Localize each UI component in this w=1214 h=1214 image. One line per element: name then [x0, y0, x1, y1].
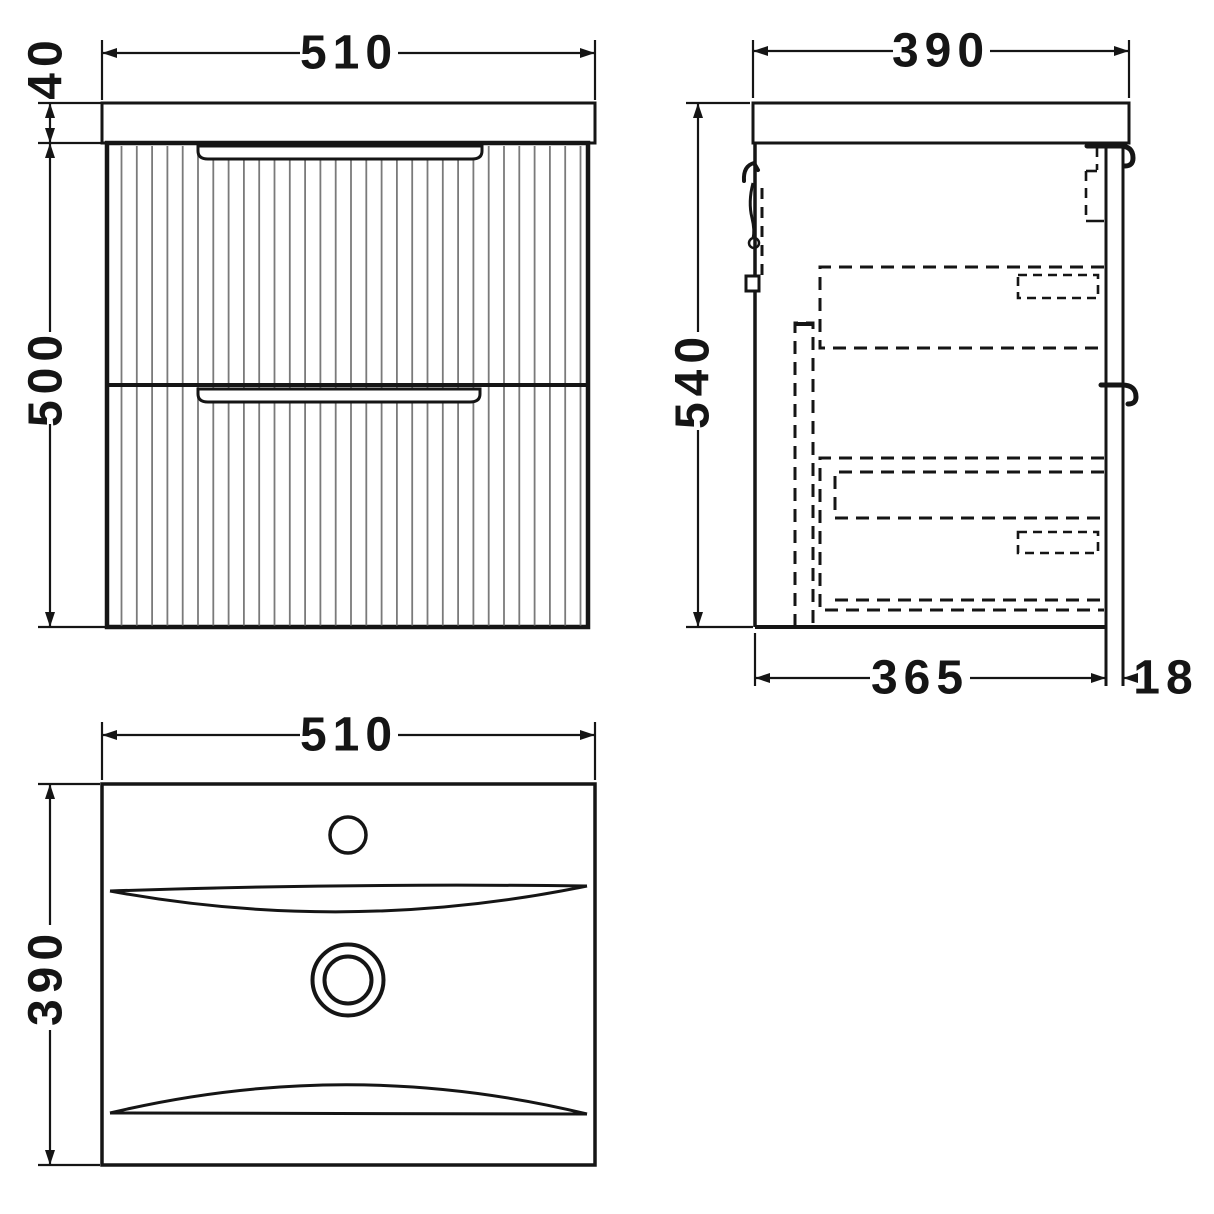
- side-dim-height: 540: [667, 103, 754, 627]
- side-wall-hook-top: [1087, 146, 1133, 166]
- front-dim-height: 500: [20, 143, 108, 627]
- front-height-label: 500: [20, 329, 73, 427]
- front-bottom-drawer-handle: [198, 389, 480, 402]
- side-hanging-bracket: [1086, 147, 1104, 221]
- front-top-drawer-handle: [198, 146, 482, 159]
- side-bottom-drawer-recess: [1018, 532, 1098, 553]
- basin-plan-view: 510 390: [20, 709, 596, 1166]
- plan-width-label: 510: [300, 709, 398, 762]
- plan-dim-depth: 390: [20, 784, 101, 1165]
- front-dim-width: 510: [102, 27, 595, 101]
- side-service-void: [795, 323, 813, 627]
- technical-drawing: 510 40 500: [0, 0, 1214, 1214]
- side-bottom-drawer-box-inner: [835, 472, 1104, 518]
- side-carcass-depth-label: 365: [871, 652, 969, 705]
- front-width-label: 510: [300, 27, 398, 80]
- front-view: 510 40 500: [20, 27, 596, 628]
- plan-depth-label: 390: [20, 928, 73, 1026]
- plan-basin-outline: [102, 784, 595, 1165]
- side-dim-carcass: 365 18: [755, 633, 1199, 705]
- side-height-label: 540: [667, 331, 720, 429]
- plan-dim-width: 510: [102, 709, 595, 781]
- side-top-drawer-box: [820, 267, 1104, 348]
- front-worktop: [102, 103, 595, 143]
- side-worktop: [753, 103, 1129, 143]
- front-dim-worktop: 40: [20, 34, 103, 143]
- side-depth-label: 390: [892, 25, 990, 78]
- side-dim-depth: 390: [753, 25, 1129, 99]
- side-back-panel-label: 18: [1133, 652, 1198, 705]
- side-top-drawer-recess: [1018, 275, 1098, 298]
- side-bottom-drawer-box-outer: [820, 458, 1104, 610]
- drawing-svg: 510 40 500: [0, 0, 1214, 1214]
- front-worktop-label: 40: [20, 34, 73, 99]
- side-drawer-boxes: [794, 267, 1104, 627]
- side-fixing-detail: [744, 163, 762, 291]
- side-view: 390 540 365 18: [667, 25, 1199, 705]
